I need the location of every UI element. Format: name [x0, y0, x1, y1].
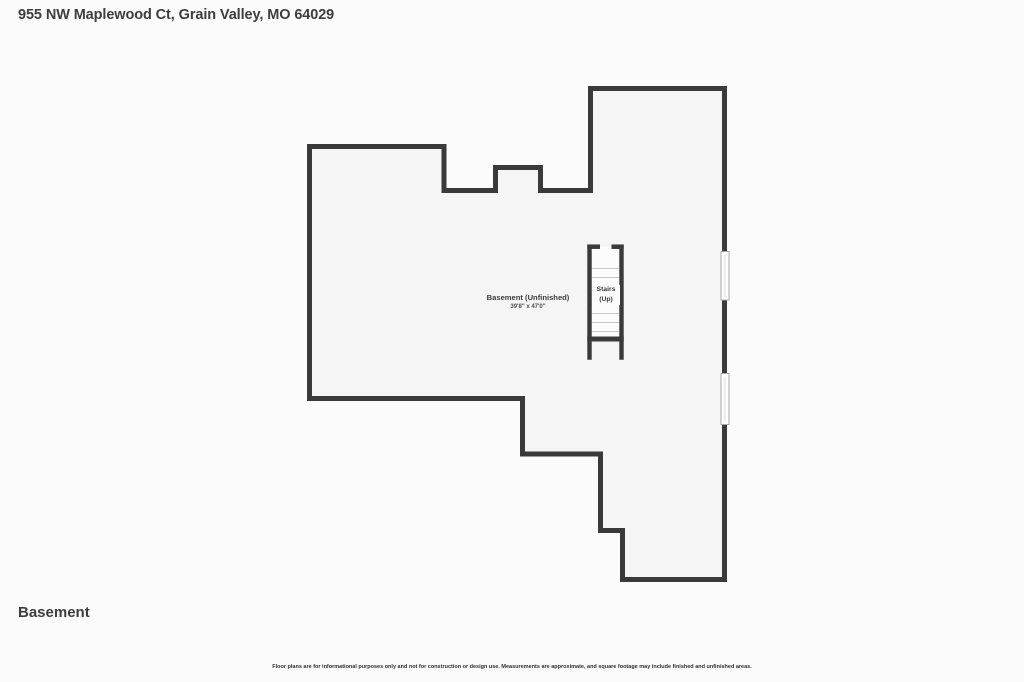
stairs-label-line2: (Up) — [592, 295, 620, 305]
basement-outline — [310, 89, 725, 580]
floor-plan-drawing — [0, 0, 1024, 682]
stairs-label: Stairs (Up) — [592, 285, 620, 305]
room-name-label: Basement (Unfinished) — [455, 293, 601, 302]
floor-name-label: Basement — [18, 604, 90, 621]
window-symbol — [721, 374, 729, 425]
stairs-label-line1: Stairs — [592, 285, 620, 295]
room-dimensions-label: 39'8" x 47'0" — [455, 304, 601, 310]
window-symbol — [721, 252, 729, 301]
disclaimer-text: Floor plans are for informational purpos… — [0, 664, 1024, 670]
floor-plan-page: 955 NW Maplewood Ct, Grain Valley, MO 64… — [0, 0, 1024, 682]
